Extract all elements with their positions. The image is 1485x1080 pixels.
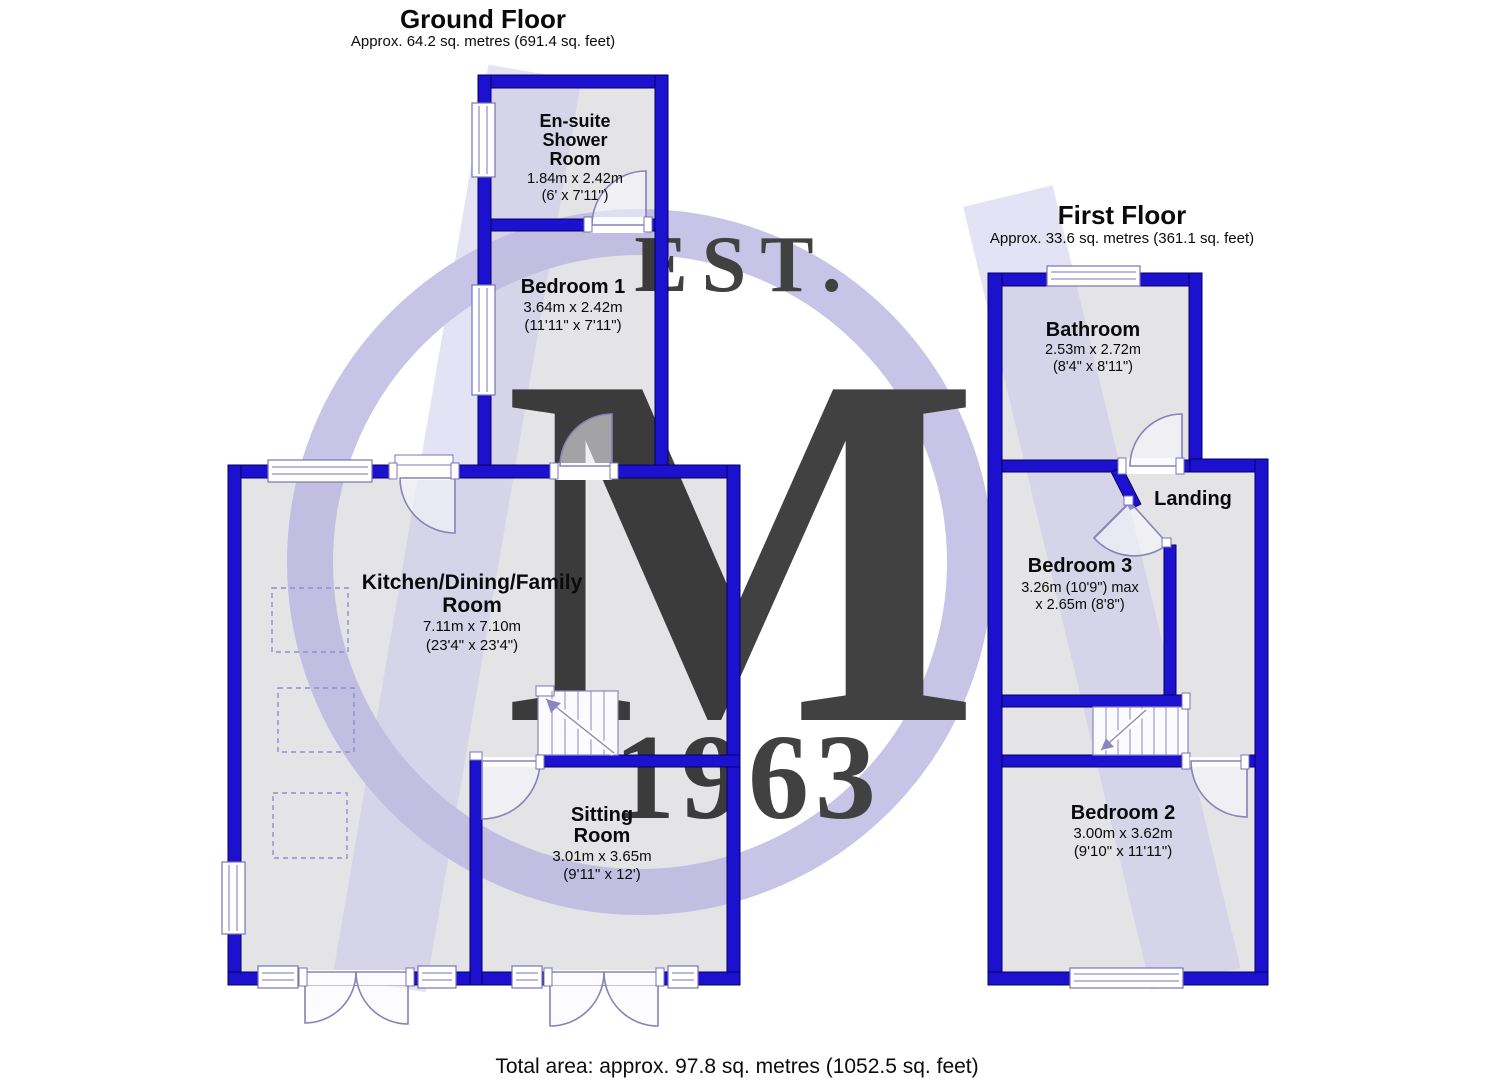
room-label-bedroom1: Bedroom 1 3.64m x 2.42m (11'11" x 7'11") — [521, 276, 625, 334]
total-area-text: Total area: approx. 97.8 sq. metres (105… — [495, 1055, 978, 1078]
bedroom2-name: Bedroom 2 — [1071, 802, 1175, 824]
window-ensuite — [472, 103, 495, 177]
sitting-name-1: Sitting — [571, 804, 633, 826]
bedroom3-name: Bedroom 3 — [1028, 555, 1132, 577]
floorplan-canvas: EST. M 1963 — [0, 0, 1485, 1080]
ensuite-name-1: En-suite — [539, 111, 610, 131]
ground-floor-subtitle: Approx. 64.2 sq. metres (691.4 sq. feet) — [351, 33, 615, 50]
kitchen-dims-metric: 7.11m x 7.10m — [423, 618, 521, 635]
staircase-ground — [536, 686, 618, 755]
window-sitting-rear-left — [512, 966, 542, 988]
bedroom2-dims-metric: 3.00m x 3.62m — [1073, 825, 1172, 842]
window-kitchen-front — [268, 460, 372, 482]
sitting-dims-imperial: (9'11" x 12') — [563, 866, 640, 883]
kitchen-name-1: Kitchen/Dining/Family — [362, 571, 583, 594]
bedroom1-dims-imperial: (11'11" x 7'11") — [524, 317, 621, 334]
window-bedroom1 — [472, 285, 495, 395]
french-doors-sitting — [544, 968, 664, 1026]
window-kitchen-rear-left — [258, 966, 298, 988]
room-label-landing: Landing — [1154, 488, 1232, 510]
ensuite-name-2: Shower — [542, 130, 607, 150]
bathroom-dims-metric: 2.53m x 2.72m — [1045, 342, 1141, 358]
window-bathroom — [1047, 266, 1140, 286]
ensuite-name-3: Room — [550, 149, 601, 169]
sitting-dims-metric: 3.01m x 3.65m — [552, 848, 651, 865]
french-doors-kitchen — [299, 968, 414, 1024]
ground-floor-header: Ground Floor Approx. 64.2 sq. metres (69… — [351, 4, 615, 50]
ensuite-dims-metric: 1.84m x 2.42m — [527, 171, 623, 187]
window-sitting-rear-right — [668, 966, 698, 988]
watermark-year: 1963 — [614, 710, 882, 845]
bedroom1-dims-metric: 3.64m x 2.42m — [523, 299, 622, 316]
room-label-bedroom3: Bedroom 3 3.26m (10'9") max x 2.65m (8'8… — [1021, 555, 1139, 613]
bedroom3-dims-metric: 3.26m (10'9") max — [1021, 580, 1139, 596]
floorplan-page: EST. M 1963 — [0, 0, 1485, 1080]
first-floor-title: First Floor — [1058, 200, 1187, 230]
first-floor-subtitle: Approx. 33.6 sq. metres (361.1 sq. feet) — [990, 230, 1254, 247]
ensuite-dims-imperial: (6' x 7'11") — [542, 188, 609, 204]
bathroom-name: Bathroom — [1046, 319, 1140, 341]
bedroom1-name: Bedroom 1 — [521, 276, 625, 298]
bedroom3-dims-imperial: x 2.65m (8'8") — [1035, 597, 1124, 613]
room-label-bathroom: Bathroom 2.53m x 2.72m (8'4" x 8'11") — [1045, 319, 1141, 375]
sitting-name-2: Room — [574, 825, 631, 847]
window-kitchen-side — [222, 862, 245, 934]
bathroom-dims-imperial: (8'4" x 8'11") — [1053, 359, 1133, 375]
landing-name: Landing — [1154, 488, 1232, 510]
room-label-bedroom2: Bedroom 2 3.00m x 3.62m (9'10" x 11'11") — [1071, 802, 1175, 860]
window-kitchen-rear-right — [418, 966, 456, 988]
window-bedroom2 — [1070, 968, 1183, 988]
ground-floor-title: Ground Floor — [400, 4, 566, 34]
bedroom2-dims-imperial: (9'10" x 11'11") — [1074, 843, 1172, 860]
kitchen-dims-imperial: (23'4" x 23'4") — [426, 637, 518, 654]
kitchen-name-2: Room — [442, 594, 502, 617]
